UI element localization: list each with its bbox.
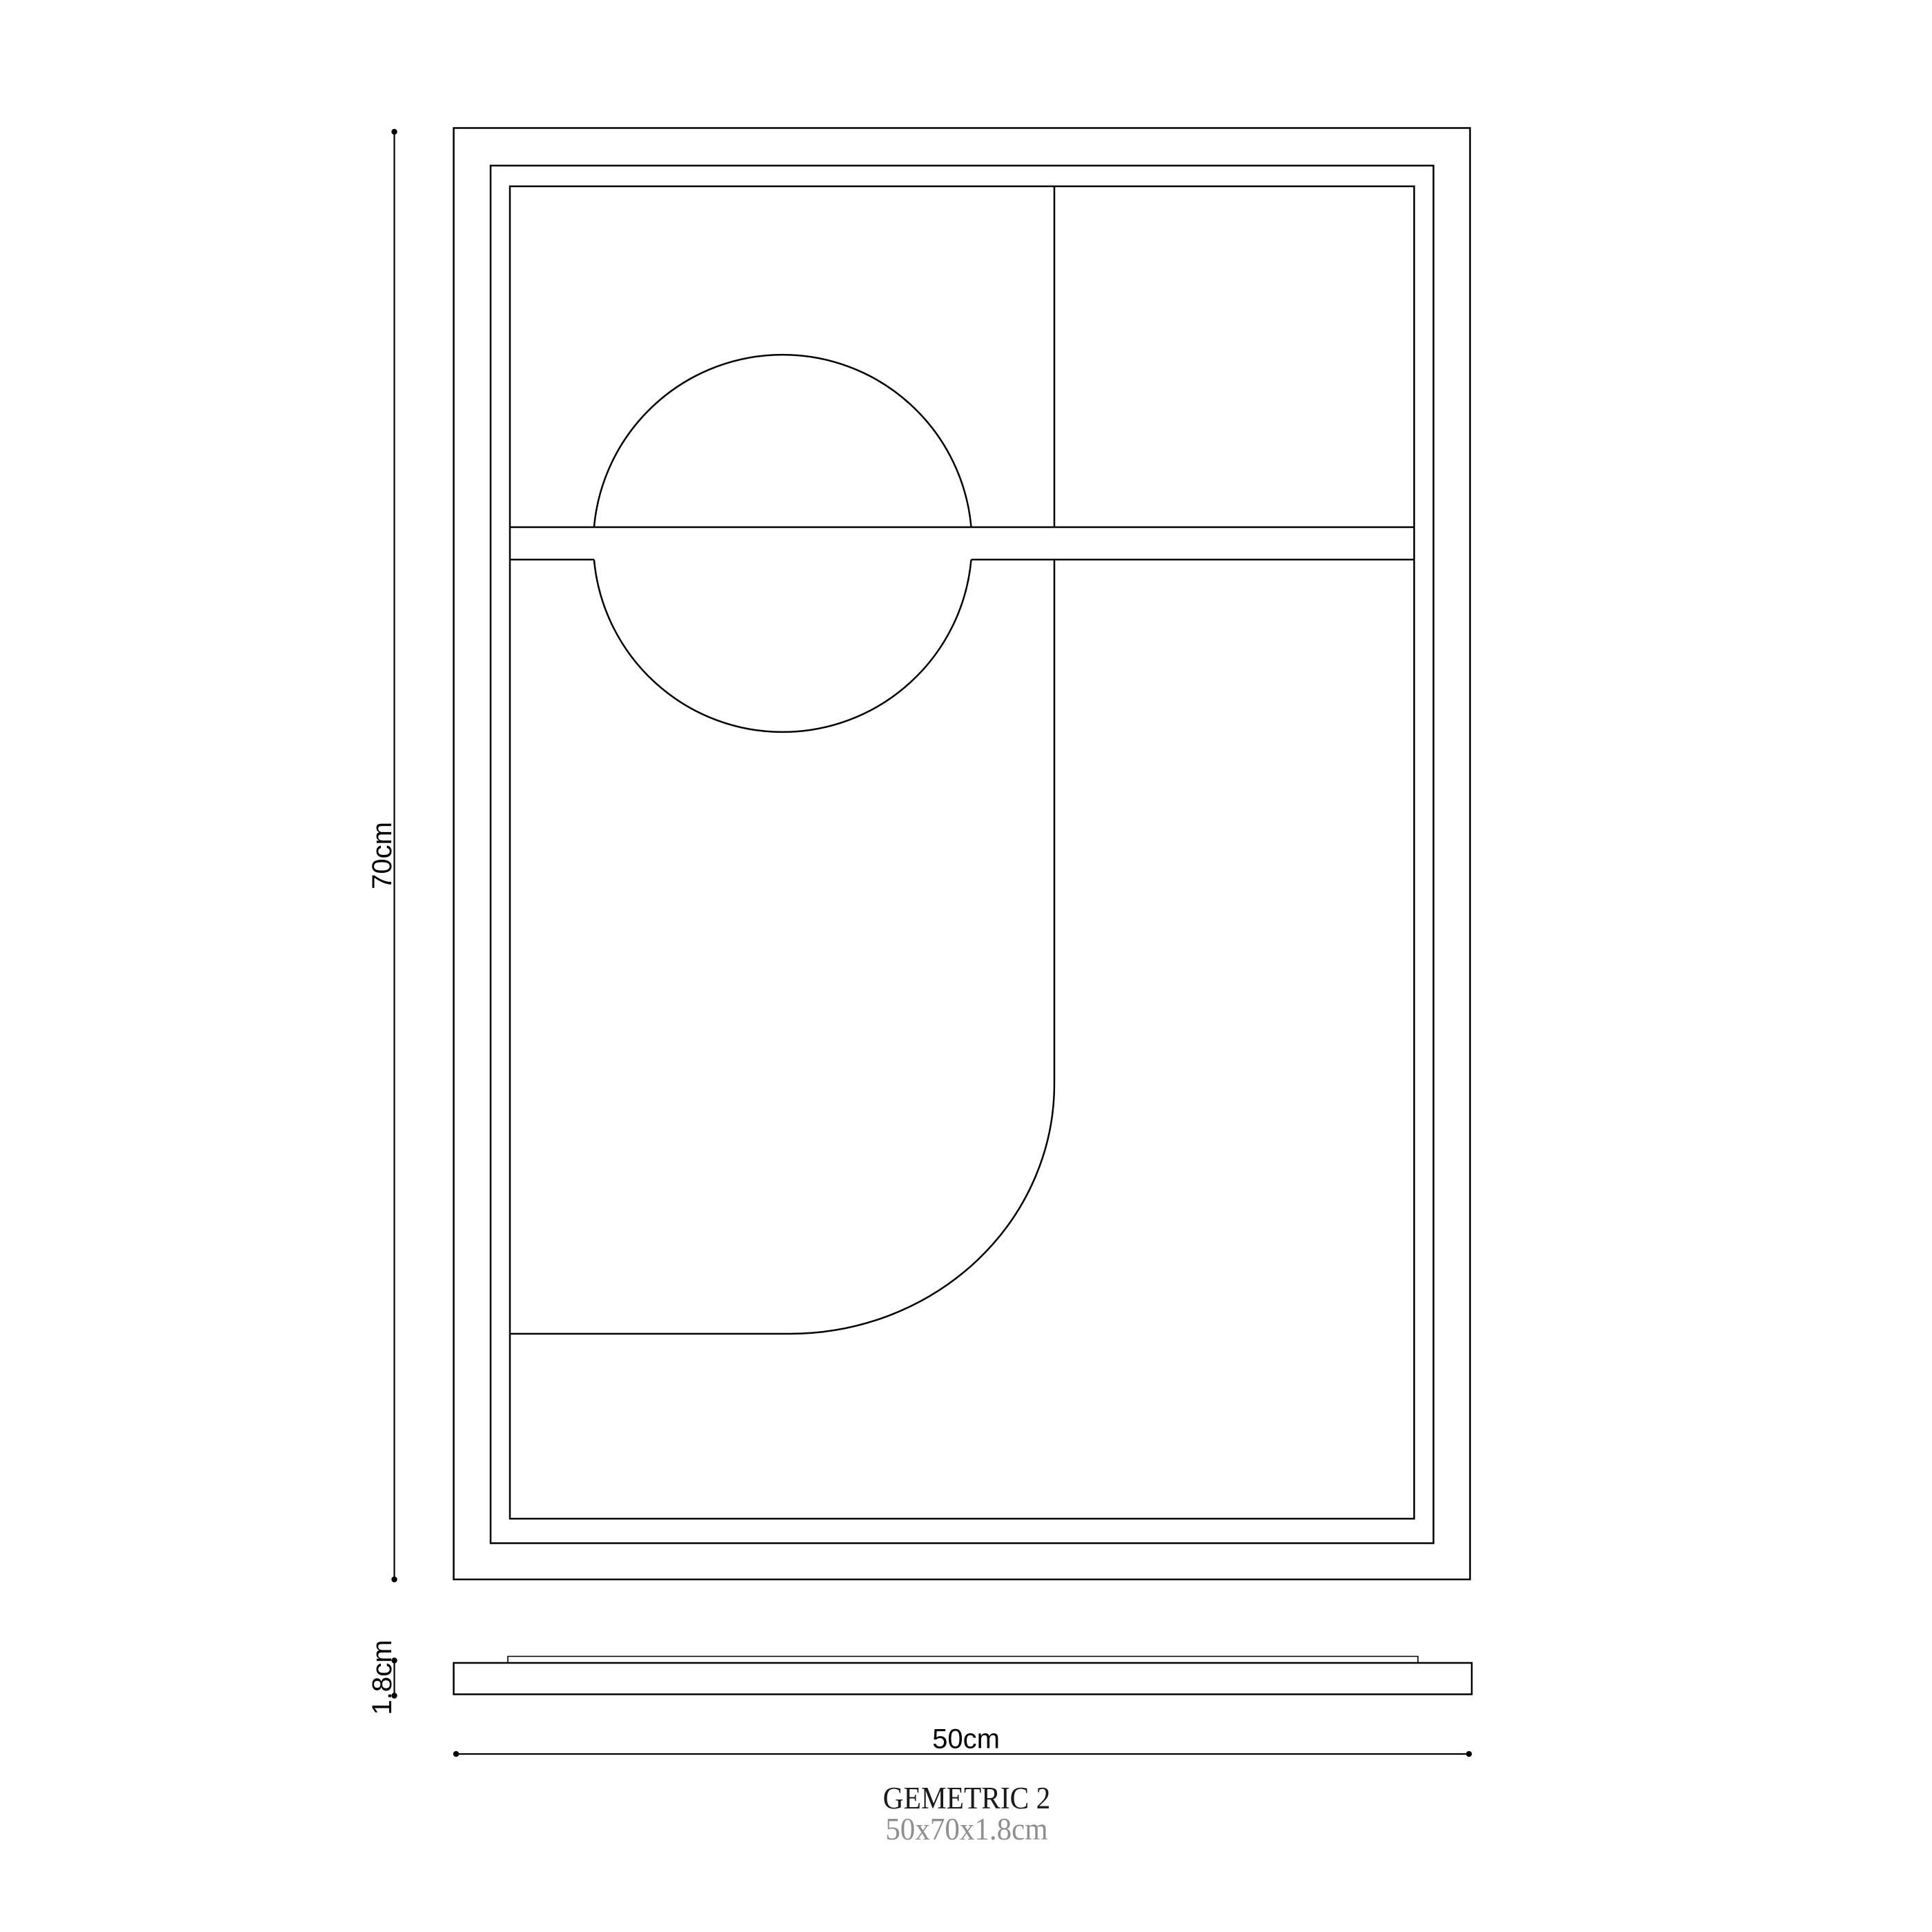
svg-text:GEMETRIC 2: GEMETRIC 2 <box>883 1781 1051 1815</box>
svg-text:70cm: 70cm <box>367 822 397 889</box>
svg-text:50cm: 50cm <box>932 1724 1000 1755</box>
svg-text:50x70x1.8cm: 50x70x1.8cm <box>885 1812 1047 1846</box>
svg-text:1.8cm: 1.8cm <box>367 1640 397 1715</box>
